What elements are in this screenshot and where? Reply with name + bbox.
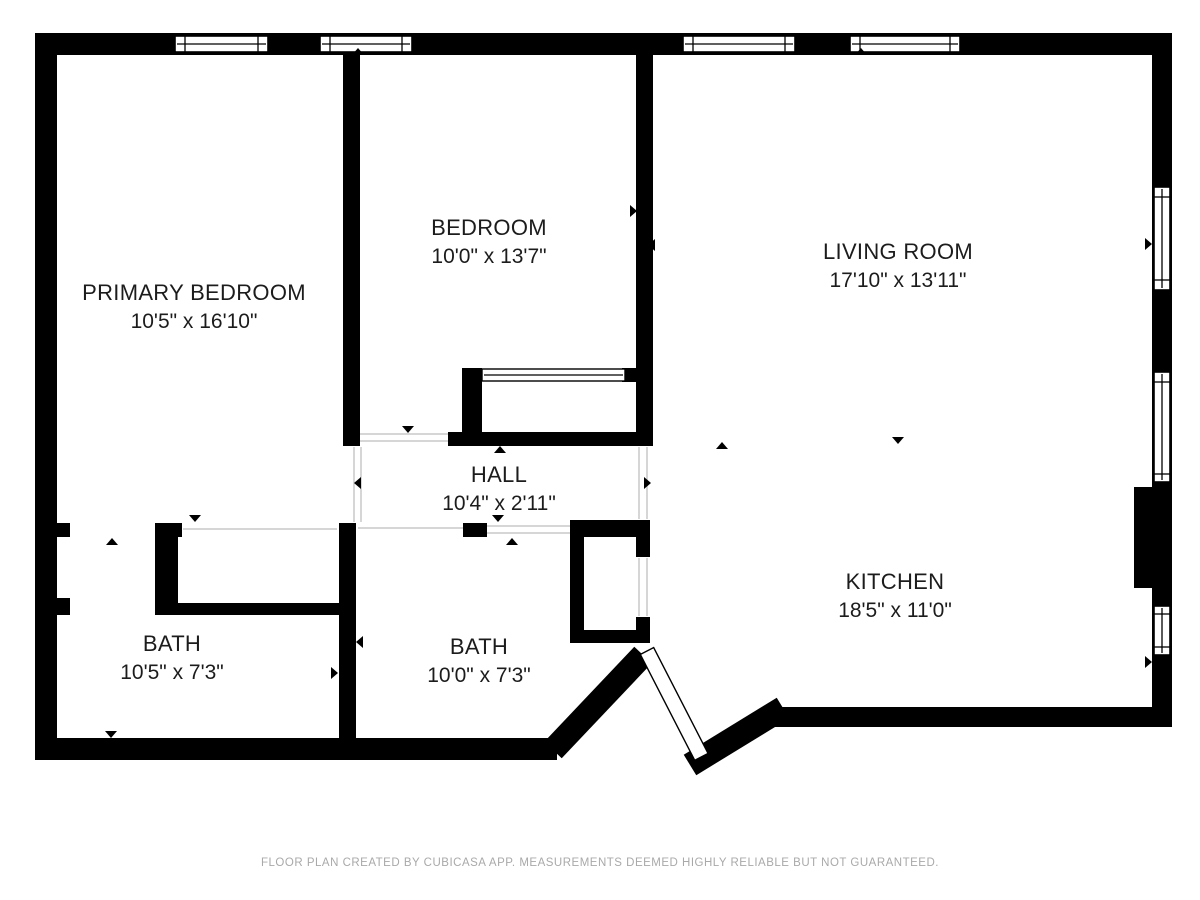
exterior-walls (35, 33, 1172, 765)
direction-marker (630, 205, 637, 217)
direction-marker (1145, 238, 1152, 250)
entry-door-leaf (640, 648, 708, 761)
window (683, 36, 795, 52)
direction-marker (106, 538, 118, 545)
direction-marker (356, 636, 363, 648)
direction-marker (331, 667, 338, 679)
direction-marker (354, 477, 361, 489)
window (850, 36, 960, 52)
direction-marker (892, 437, 904, 444)
door-openings (183, 369, 708, 760)
window (1154, 372, 1170, 482)
windows (175, 36, 1170, 655)
footer-disclaimer: FLOOR PLAN CREATED BY CUBICASA APP. MEAS… (0, 857, 1200, 869)
floor-plan-canvas: PRIMARY BEDROOM 10'5" x 16'10" BEDROOM 1… (0, 0, 1200, 900)
window (320, 36, 412, 52)
sliding-door (482, 369, 625, 381)
direction-marker (494, 446, 506, 453)
window (1154, 187, 1170, 290)
direction-marker (189, 515, 201, 522)
direction-marker (506, 538, 518, 545)
floor-plan-drawing (0, 0, 1200, 900)
interior-walls (45, 48, 653, 743)
direction-marker (1145, 656, 1152, 668)
window (1154, 606, 1170, 655)
entry-diagonal-wall-left (553, 655, 643, 750)
direction-marker (402, 426, 414, 433)
direction-marker (716, 442, 728, 449)
direction-marker (105, 731, 117, 738)
entry-diagonal-wall-right (690, 708, 783, 765)
direction-marker (492, 515, 504, 522)
window (175, 36, 268, 52)
